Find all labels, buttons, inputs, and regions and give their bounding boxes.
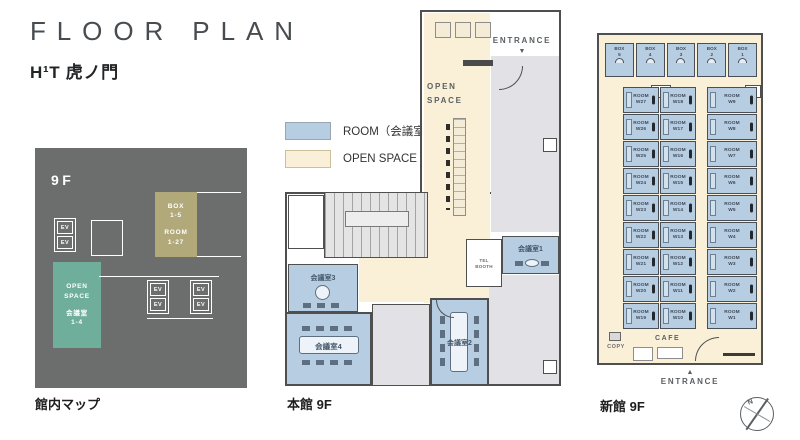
box-number: 3 [680,52,683,57]
wall-line [147,318,213,319]
cafe-counter [657,347,683,359]
annex-room-number: W3 [728,262,735,268]
annex-room-number: W1 [728,316,735,322]
annex-room-number: W19 [636,316,646,322]
annex-room: ROOM W1 [707,303,757,329]
annex-room-number: W27 [636,100,646,106]
annex-room-number: W8 [728,127,735,133]
site-map-caption: 館内マップ [35,394,100,413]
main-building-plan: ENTRANCE ▼ OPEN SPACE 会議室3 [285,8,563,388]
box-room: BOX 5 [605,43,634,77]
open-block-line: OPEN [66,282,88,292]
annex-room-number: W23 [636,208,646,214]
box-room: BOX 1 [728,43,757,77]
service-room [288,195,324,249]
copy-label: COPY [603,344,629,351]
site-map-open-space-block: OPEN SPACE 会議室 1-4 [53,262,101,348]
copier-icon [609,332,621,341]
chair-icon [676,58,685,63]
round-table [315,285,330,300]
annex-room-column-center: ROOM W18 ROOM W17 ROOM W16 ROOM W15 ROOM… [660,87,696,329]
chair-icon [707,58,716,63]
annex-room-number: W9 [728,100,735,106]
page-title: FLOOR PLAN [30,16,304,47]
annex-plan: BOX 5 BOX 4 BOX 3 BOX 2 BOX 1 [597,33,763,365]
annex-room: ROOM W24 [623,168,659,194]
elevator-shaft-east-1: EV EV [147,280,169,314]
annex-room: ROOM W11 [660,276,696,302]
annex-room: ROOM W2 [707,276,757,302]
elevator: EV [57,236,73,249]
kitchen-counter [463,60,493,66]
bench [723,353,755,356]
annex-room: ROOM W3 [707,249,757,275]
annex-room-number: W18 [673,100,683,106]
counter-seats [446,124,450,210]
annex-entrance-arrow-icon: ▲ [630,369,750,376]
open-block-line: 会議室 [66,309,88,319]
annex-room: ROOM W23 [623,195,659,221]
annex-room: ROOM W27 [623,87,659,113]
box-block-line: BOX [168,202,184,212]
meeting-room-4-label: 会議室4 [287,341,370,352]
stair-landing [345,211,409,227]
annex-room: ROOM W21 [623,249,659,275]
annex-room: ROOM W14 [660,195,696,221]
annex-room: ROOM W22 [623,222,659,248]
pillar [543,360,557,374]
annex-room-number: W22 [636,235,646,241]
open-space-line: SPACE [427,94,463,108]
table [435,22,451,38]
corridor-area [372,304,430,386]
cafe-label: CAFE [655,335,680,342]
elevator-shaft-east-2: EV EV [190,280,212,314]
chairs [302,326,356,331]
annex-caption: 新館 9F [600,396,645,415]
meeting-room-2-label: 会議室2 [432,338,487,348]
annex-room-number: W7 [728,154,735,160]
annex-room: ROOM W12 [660,249,696,275]
annex-room: ROOM W17 [660,114,696,140]
annex-room: ROOM W19 [623,303,659,329]
chair-icon [738,58,747,63]
annex-room-number: W5 [728,208,735,214]
entrance-arrow-icon: ▼ [483,48,561,55]
annex-room: ROOM W18 [660,87,696,113]
site-map-panel: 9F BOX 1-5 ROOM 1-27 OPEN SPACE 会議室 1-4 … [35,148,247,388]
chairs [541,261,549,266]
entrance-label: ENTRANCE [483,36,561,45]
annex-room-column-east: ROOM W9 ROOM W8 ROOM W7 ROOM W6 ROOM W5 … [707,87,757,329]
wall-line [197,256,241,257]
wall-line [197,192,241,193]
staircase [324,192,428,258]
chairs [303,303,343,308]
annex-room: ROOM W15 [660,168,696,194]
open-space-label: OPEN SPACE [427,80,463,109]
table [475,22,491,38]
open-block-line: 1-4 [71,318,83,328]
annex-room-number: W25 [636,154,646,160]
cafe-counter [633,347,653,361]
round-table [525,259,539,267]
tel-booth-line: BOOTH [467,264,501,270]
copy-corner: COPY [603,332,629,362]
meeting-room-1-label: 会議室1 [503,244,558,254]
meeting-room-4: 会議室4 [285,312,372,386]
annex-room: ROOM W26 [623,114,659,140]
annex-room: ROOM W5 [707,195,757,221]
annex-room-number: W2 [728,289,735,295]
annex-room: ROOM W10 [660,303,696,329]
main-building-caption: 本館 9F [287,394,332,413]
open-space-line: OPEN [427,80,463,94]
box-number: 1 [741,52,744,57]
chairs [302,360,356,365]
meeting-room-3: 会議室3 [288,264,358,312]
annex-room-number: W13 [673,235,683,241]
long-counter [453,118,466,216]
elevator: EV [150,283,166,296]
page-subtitle: H¹T 虎ノ門 [30,58,119,83]
annex-room-number: W21 [636,262,646,268]
box-number: 2 [711,52,714,57]
tel-booth: TEL BOOTH [466,239,502,287]
annex-room-number: W26 [636,127,646,133]
meeting-room-2: 会議室2 [430,298,489,386]
annex-room: ROOM W25 [623,141,659,167]
box-number: 5 [618,52,621,57]
annex-room-number: W16 [673,154,683,160]
tel-booth-label: TEL BOOTH [467,258,501,269]
annex-room: ROOM W20 [623,276,659,302]
annex-entrance-label: ENTRANCE [630,377,750,386]
door-arc-icon [695,337,719,361]
annex-room: ROOM W8 [707,114,757,140]
annex-room: ROOM W4 [707,222,757,248]
room-outline [91,220,123,256]
annex-room-column-west: ROOM W27 ROOM W26 ROOM W25 ROOM W24 ROOM… [623,87,659,329]
annex-room-number: W12 [673,262,683,268]
annex-room-number: W20 [636,289,646,295]
box-row: BOX 5 BOX 4 BOX 3 BOX 2 BOX 1 [605,43,757,77]
box-room: BOX 2 [697,43,726,77]
annex-room-number: W11 [673,289,683,295]
elevator: EV [150,298,166,311]
elevator: EV [193,283,209,296]
box-block-line: 1-27 [168,238,184,248]
chair-icon [615,58,624,63]
wall-line [99,276,219,277]
annex-room-number: W15 [673,181,683,187]
compass-icon: N [740,397,774,431]
site-map-floor-label: 9F [51,172,74,188]
elevator: EV [193,298,209,311]
open-block-line: SPACE [64,292,90,302]
pillar [543,138,557,152]
compass-needle [744,406,770,422]
box-room: BOX 3 [667,43,696,77]
annex-room-number: W24 [636,181,646,187]
box-number: 4 [649,52,652,57]
floor-plan-page: FLOOR PLAN H¹T 虎ノ門 ROOM（会議室） OPEN SPACE … [0,0,800,440]
elevator: EV [57,221,73,234]
site-map-box-room-block: BOX 1-5 ROOM 1-27 [155,192,197,257]
annex-room-number: W17 [673,127,683,133]
annex-room: ROOM W7 [707,141,757,167]
chairs [515,261,523,266]
table [455,22,471,38]
annex-room-number: W14 [673,208,683,214]
box-block-line: ROOM [164,228,187,238]
box-room: BOX 4 [636,43,665,77]
meeting-room-3-label: 会議室3 [289,273,357,283]
annex-room: ROOM W6 [707,168,757,194]
annex-room: ROOM W13 [660,222,696,248]
door-arc-icon [436,300,454,318]
compass-north-label: N [747,398,754,406]
annex-room: ROOM W9 [707,87,757,113]
annex-room-number: W4 [728,235,735,241]
chair-icon [646,58,655,63]
annex-room-number: W10 [673,316,683,322]
annex-room-number: W6 [728,181,735,187]
annex-room: ROOM W16 [660,141,696,167]
box-block-line: 1-5 [170,211,182,221]
elevator-shaft-west: EV EV [54,218,76,252]
meeting-room-1: 会議室1 [502,236,559,274]
